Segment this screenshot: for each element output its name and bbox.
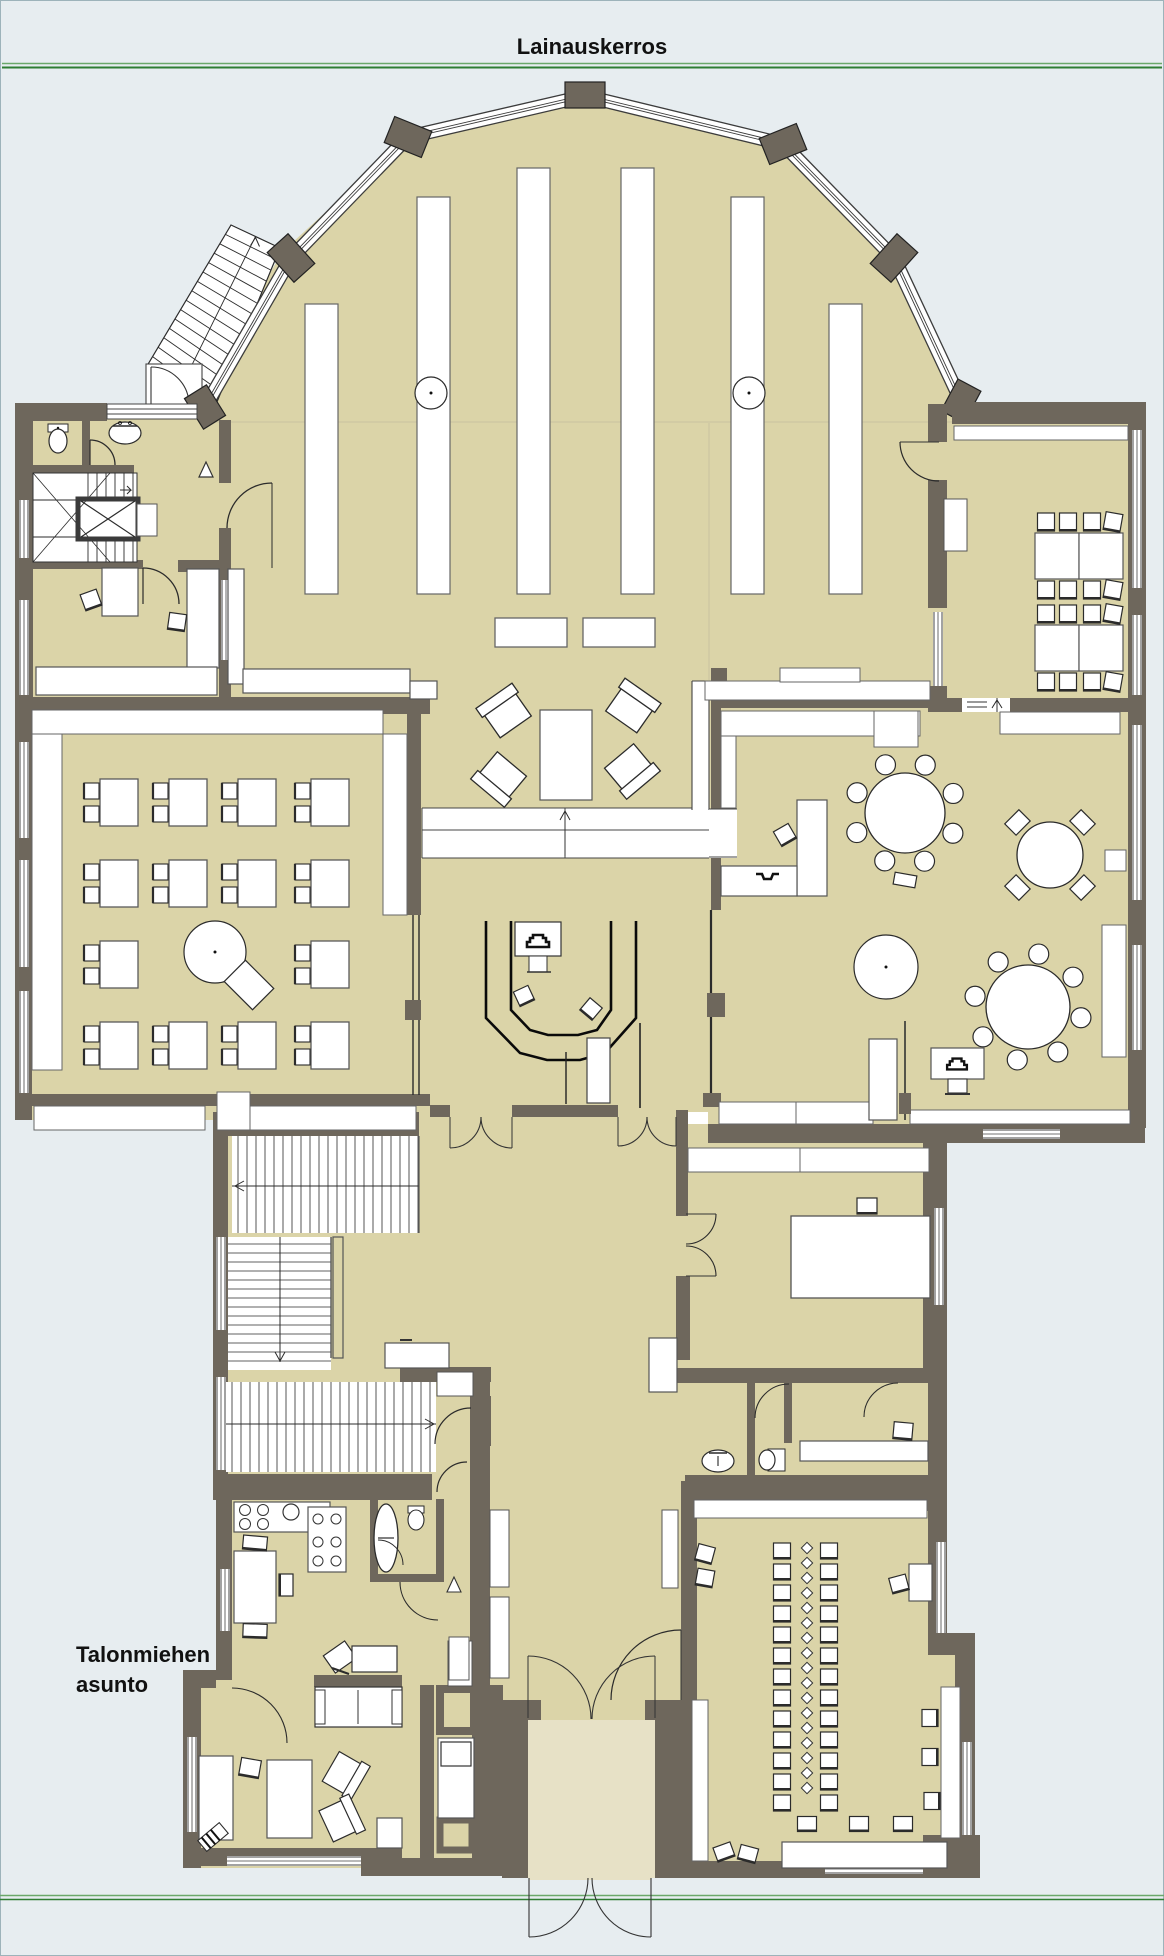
svg-text:Lainauskerros: Lainauskerros (517, 34, 667, 59)
svg-text:asunto: asunto (76, 1672, 148, 1697)
svg-text:Talonmiehen: Talonmiehen (76, 1642, 210, 1667)
